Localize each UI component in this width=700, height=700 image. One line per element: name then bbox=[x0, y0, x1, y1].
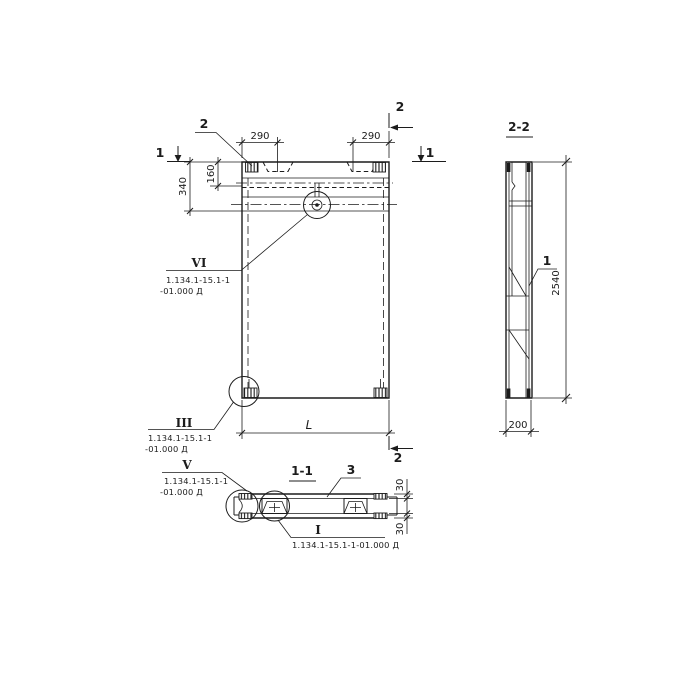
keyway-right bbox=[347, 162, 377, 172]
front-elevation-view: 2 1 1 2 2 bbox=[145, 99, 446, 465]
detail-v-ref-1: 1.134.1-15.1-1 bbox=[164, 476, 228, 486]
dim-340-value: 340 bbox=[178, 177, 189, 196]
plan-1-1-title: 1-1 bbox=[291, 464, 313, 478]
detail-iii-ref-1: 1.134.1-15.1-1 bbox=[148, 433, 212, 443]
embed-plate-bottom-right bbox=[374, 388, 387, 398]
dim-290-left: 290 bbox=[236, 131, 284, 172]
plan-keyway-left bbox=[262, 499, 287, 514]
section-1-right-arrow-icon bbox=[418, 155, 425, 162]
detail-label-iii: III 1.134.1-15.1-1 -01.000 Д bbox=[145, 402, 234, 454]
detail-label-vi: VI 1.134.1-15.1-1 -01.000 Д bbox=[160, 215, 308, 297]
dim-290-left-value: 290 bbox=[250, 131, 269, 142]
section-cut-1-right: 1 bbox=[412, 145, 446, 162]
dim-160-value: 160 bbox=[206, 164, 217, 183]
detail-label-v: V 1.134.1-15.1-1 -01.000 Д bbox=[160, 458, 247, 497]
section-1-right-label: 1 bbox=[426, 145, 435, 160]
detail-v-label: V bbox=[181, 458, 192, 472]
section-2-2-title: 2-2 bbox=[508, 120, 530, 134]
dim-290-right-value: 290 bbox=[361, 131, 380, 142]
detail-iii-ref-2: -01.000 Д bbox=[145, 444, 188, 454]
detail-vi-ref-1: 1.134.1-15.1-1 bbox=[166, 275, 230, 285]
dim-290-right: 290 bbox=[347, 131, 395, 172]
embed-plate-top-right bbox=[373, 163, 386, 173]
part-1-label: 1 bbox=[543, 253, 552, 268]
dim-30-bottom-value: 30 bbox=[395, 523, 406, 536]
detail-vi-ref-2: -01.000 Д bbox=[160, 286, 203, 296]
dim-30-top-value: 30 bbox=[395, 479, 406, 492]
plan-keyway-right bbox=[344, 499, 367, 514]
plan-1-1-view: 1-1 3 bbox=[160, 458, 413, 550]
section-cut-2-bottom: 2 bbox=[389, 436, 413, 465]
keyway-left bbox=[263, 162, 293, 172]
detail-iii-label: III bbox=[176, 416, 193, 430]
embed-plate-bottom-left bbox=[244, 388, 257, 398]
detail-vi-label: VI bbox=[191, 256, 207, 270]
section-2-top-arrow-icon bbox=[390, 125, 398, 131]
section-cut-2-top: 2 bbox=[389, 99, 413, 131]
detail-label-i: I 1.134.1-15.1-1-01.000 Д bbox=[278, 520, 399, 550]
dim-2540: 2540 bbox=[533, 155, 572, 404]
dim-160: 160 bbox=[184, 157, 242, 191]
part-label-3: 3 bbox=[327, 462, 361, 497]
dim-200-value: 200 bbox=[508, 420, 527, 431]
section-1-left-arrow-icon bbox=[175, 155, 182, 162]
section-1-left-label: 1 bbox=[156, 145, 165, 160]
detail-v-ref-2: -01.000 Д bbox=[160, 487, 203, 497]
dim-200: 200 bbox=[499, 400, 539, 437]
drawing-sheet: 2 1 1 2 2 bbox=[0, 0, 700, 700]
dim-length: L bbox=[236, 400, 395, 439]
embed-plate-top-left bbox=[246, 163, 259, 173]
section-cut-1-left: 1 bbox=[156, 145, 191, 162]
part-3-label: 3 bbox=[347, 462, 356, 477]
section-2-top-label: 2 bbox=[396, 99, 405, 114]
detail-i-ref: 1.134.1-15.1-1-01.000 Д bbox=[292, 540, 399, 550]
dim-2540-value: 2540 bbox=[551, 270, 562, 295]
detail-i-label: I bbox=[315, 523, 321, 537]
section-2-bottom-label: 2 bbox=[394, 450, 403, 465]
technical-drawing: 2 1 1 2 2 bbox=[0, 0, 700, 700]
dim-30-group: 30 30 bbox=[389, 479, 413, 536]
embed-callout-label: 2 bbox=[200, 116, 209, 131]
section-outline bbox=[506, 162, 532, 398]
section-2-2-view: 2-2 1 2540 200 bbox=[499, 120, 572, 437]
dim-length-value: L bbox=[306, 418, 313, 432]
